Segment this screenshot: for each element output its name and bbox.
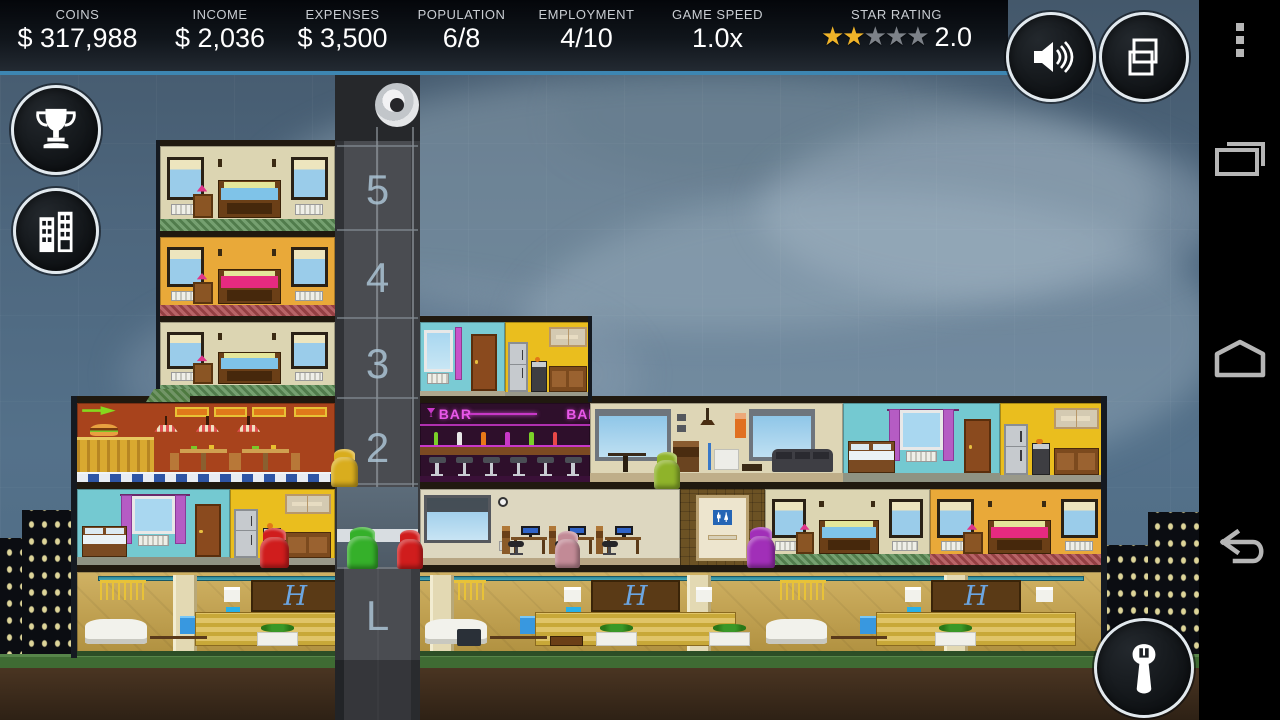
desk-leg [542,540,545,554]
bottle [505,432,510,445]
fridge-handle [522,350,523,360]
bottle [434,432,439,445]
wall-lamp [218,333,222,340]
white-cabinet [714,449,739,470]
lamp-shade [154,425,177,432]
window [132,496,175,535]
window [291,157,328,200]
wall-clock [498,497,508,507]
floor-slab [71,396,340,403]
floor-lamp [708,443,711,470]
coffee-table [742,464,762,471]
hud-label-income: INCOME [193,7,248,22]
cushion [813,452,829,460]
door-handle [475,360,478,363]
hanging-lamp [706,408,709,421]
shaft-base-shade [335,660,420,720]
reception-sign: H [931,580,1020,612]
menu-board [214,407,248,417]
fridge-handle [1020,450,1022,460]
bed [218,269,281,304]
suitcase [550,636,583,646]
lounge-floor2[interactable] [590,403,843,483]
game-screen: BARBARHHH 5432L COINS $ 317,988 INCOME $… [0,0,1280,720]
bar-counter [420,445,590,455]
radiator [906,451,937,462]
radiator [892,541,918,551]
nightstand [193,282,212,304]
figure-male [717,512,721,522]
bottle [481,432,486,445]
bed [82,526,128,557]
frame-panel [828,540,870,550]
counter [549,366,586,393]
pillow [851,444,869,451]
cushion [776,452,792,460]
curtain [455,327,463,380]
floor-slab [414,316,592,322]
floor-slab [71,482,1107,489]
bedroom-floor1-mid[interactable] [765,489,930,566]
lamp-shade [196,425,219,432]
stool-leg [517,463,520,475]
stove [531,361,546,392]
monitor [521,526,539,535]
android-body [260,537,289,568]
radiator [138,535,169,546]
sound-button[interactable] [1006,12,1096,102]
speaker-icon [1027,33,1075,81]
window [424,330,453,372]
tools-button[interactable] [1094,618,1194,718]
android-body [747,536,775,568]
fridge-handle [251,535,253,545]
shelf-tower [502,526,510,554]
bedroom-floor1-right[interactable] [930,489,1105,566]
monitor-stand [529,535,533,537]
pillow [106,528,124,534]
buildings-button[interactable] [13,188,99,274]
table-item [209,445,214,449]
plant [596,632,637,645]
trophy-icon [33,105,79,155]
lamp-shade [237,425,260,432]
android-purple-restroom[interactable] [747,527,775,568]
hud-stat-star-rating: STAR RATING ★★★★★2.0 [785,0,1008,71]
blanket [221,188,278,200]
luggage [457,629,481,646]
shelf-tower [596,526,604,554]
reception-sign: H [591,580,680,612]
window [1061,499,1098,538]
stool-leg [490,463,493,475]
radiator [1065,541,1093,551]
hud-value-game-speed: 1.0x [692,23,743,54]
dirt [0,668,1280,720]
menu-board [175,407,209,417]
plant [935,632,976,645]
plant [257,632,298,645]
counter-door [1057,453,1074,470]
layers-icon [1120,33,1168,81]
lamp-shade-dark [700,420,715,426]
shaft-floor-line [337,229,418,231]
chair-base [510,553,523,555]
table-leg [263,453,268,471]
lobby-floor-line [77,651,1105,656]
android-red-kitchen[interactable] [260,528,289,568]
diner-floor2[interactable] [77,403,335,483]
floor-slab [156,140,338,146]
desk-lamp [564,590,580,602]
achievements-button[interactable] [11,85,101,175]
bed [819,520,878,554]
window [424,495,492,543]
radiator [295,204,323,215]
back-icon[interactable] [1199,528,1280,570]
door [964,419,991,473]
blanket [221,276,278,287]
hud-label-coins: COINS [56,7,100,22]
blanket [849,451,894,460]
hud-stat-income: INCOME $ 2,036 [155,0,285,71]
chair [232,453,241,471]
upper-cabinet [549,327,586,347]
bedroom-floor1-left[interactable] [77,489,230,566]
desk-lamp [224,590,240,602]
hotel-monogram: H [284,581,308,612]
bed [218,180,281,218]
bottle [553,432,558,445]
bedroom-floor4[interactable] [160,237,335,317]
neon-line [466,413,537,415]
shaft-floor-line [337,145,418,147]
door-plate [708,535,738,540]
pot [1036,439,1043,444]
window [900,410,944,450]
floor-label-L: L [335,592,420,640]
star-icon: ★ [842,24,865,50]
desk-lamp [1036,590,1052,602]
pulley-hub [390,98,404,112]
grass [0,654,1280,668]
arrow-sign [82,406,116,415]
hotel-monogram: H [964,581,988,612]
hud-label-expenses: EXPENSES [305,7,379,22]
android-body [555,539,580,568]
door [471,334,497,390]
menu-board [294,407,328,417]
hud-value-income: $ 2,036 [175,23,265,54]
shelf-line [420,424,590,426]
bed [218,352,281,385]
bed [988,520,1051,554]
android-body [397,539,423,569]
chandelier [780,580,826,600]
hud-label-employment: EMPLOYMENT [538,7,634,22]
nightstand [193,194,212,218]
table-leg [201,453,206,471]
cabinet-split [1076,410,1077,427]
radiator [295,372,323,382]
stool-leg [463,463,466,475]
counter [1054,448,1099,475]
fridge [234,509,258,558]
android-green-lounge[interactable] [654,452,680,489]
overflow-menu-icon[interactable] [1199,22,1280,58]
armchair [766,619,828,644]
pulley-wheel [375,83,419,127]
fridge [508,342,528,392]
chair [291,453,300,471]
blanket [991,527,1048,538]
screens-button[interactable] [1099,12,1189,102]
stool-leg [571,463,574,475]
chair [170,453,179,471]
info-stand [860,616,875,634]
android-body [331,457,358,487]
hud-label-population: POPULATION [418,7,506,22]
window [291,247,328,287]
table-item [271,445,276,449]
fridge-split [236,530,256,531]
counter-door [569,371,583,387]
wall-lamp [218,249,222,256]
service-bell [226,607,240,612]
bedroom-floor5[interactable] [160,146,335,232]
chandelier [100,580,146,600]
curtain [175,495,186,544]
bar-floor2[interactable]: BARBAR [420,403,590,483]
star-icon: ★ [906,24,929,50]
menu-board [252,407,286,417]
curtain [943,409,954,460]
table-item [191,446,197,449]
window [889,499,924,538]
info-stand [520,616,535,634]
restroom-sign [713,510,732,524]
blanket [221,358,278,368]
hud-value-employment: 4/10 [560,23,613,54]
hud-label-star-rating: STAR RATING [851,7,942,22]
pillow [873,444,891,451]
counter-door [309,537,327,553]
desk-lamp [696,590,712,602]
stool-leg [544,463,547,475]
restroom-door [696,495,749,561]
pillow [85,528,103,534]
fridge [1004,424,1028,475]
recent-apps-icon[interactable] [1199,138,1280,182]
fridge-split [510,364,526,365]
nightstand [796,532,814,554]
hud-stat-population: POPULATION 6/8 [400,0,523,71]
frame-panel [997,540,1042,550]
building-edge [588,316,592,402]
info-stand [180,616,195,634]
counter-door [1078,453,1095,470]
side-table [831,636,888,639]
building-icon [34,208,78,254]
service-bell [566,607,580,612]
android-red-elevator[interactable] [397,530,423,569]
hallway-floor3[interactable] [420,322,505,400]
android-green-elevator[interactable] [347,527,378,569]
wall-lamp [871,501,875,508]
wall-lamp [218,159,222,167]
kitchen-floor2[interactable] [1000,403,1103,483]
side-table [490,636,547,639]
stove-top [532,362,545,367]
floor-slab [156,316,338,322]
skyline-building [22,510,78,660]
floor-label-4: 4 [335,254,420,302]
hud-stat-coins: COINS $ 317,988 [0,0,155,71]
android-pink-office[interactable] [555,531,580,568]
home-icon[interactable] [1199,338,1280,378]
dining-leg [623,456,628,472]
android-body [654,460,680,489]
cabinet-split [568,329,569,345]
hud-value-expenses: $ 3,500 [297,23,387,54]
hud-stat-game-speed: GAME SPEED 1.0x [650,0,785,71]
upper-cabinet [285,494,331,514]
hud-bar: COINS $ 317,988 INCOME $ 2,036 EXPENSES … [0,0,1008,75]
shaft-floor-line [337,317,418,319]
fridge-handle [1020,431,1022,441]
stove [1032,443,1051,475]
table-item [252,446,258,449]
bedroom-floor3[interactable] [160,322,335,396]
bar-sign-text: BAR [566,406,590,422]
bar-sign-text: BAR [439,406,472,422]
frame-panel [227,290,272,301]
android-nav-bar [1199,0,1280,720]
armchair [85,619,147,644]
fridge-handle [251,516,253,526]
radiator [427,373,449,383]
desk-lamp [905,590,921,602]
stove-top [1033,444,1050,449]
wall-lamp [272,159,276,167]
hud-stat-expenses: EXPENSES $ 3,500 [285,0,400,71]
counter [285,532,331,558]
picture-frames [677,411,686,432]
wall-lamp [272,333,276,340]
hotel-lobby[interactable]: HHH [77,572,1105,656]
counter-door [288,537,306,553]
door-handle [969,445,972,449]
blanket [83,535,127,544]
android-body [347,536,378,569]
plant-greens [600,624,633,632]
monitor [615,526,633,535]
hud-label-game-speed: GAME SPEED [672,7,763,22]
reception-sign: H [251,580,340,612]
wall-lamp [988,501,992,508]
floor-slab [71,565,1107,572]
floor-label-3: 3 [335,340,420,388]
bottle [529,432,534,445]
wrench-icon [1119,641,1169,695]
radiator [295,291,323,301]
hud-value-population: 6/8 [443,23,481,54]
wall-lamp [819,501,823,508]
kitchen-floor3[interactable] [505,322,590,400]
shaft-floor-line [337,397,418,399]
counter [77,437,154,473]
plant [709,632,750,645]
floor-slab [414,396,592,403]
door-handle [199,530,202,533]
monitor-stand [622,535,626,537]
plant-greens [713,624,746,632]
service-bell [907,607,921,612]
fridge-split [1006,446,1026,447]
cushion [795,452,811,460]
frame-panel [227,203,272,214]
hotel-monogram: H [624,581,648,612]
nightstand [963,532,982,554]
plant-greens [261,624,294,632]
martini-icon [427,408,436,418]
burger [90,424,118,436]
bottle [457,432,462,445]
counter-door [552,371,566,387]
star-icon: ★ [864,24,887,50]
floor-slab [584,396,1107,403]
wall-lamp [272,249,276,256]
upper-cabinet [1054,408,1099,429]
hud-value-star-rating: 2.0 [935,22,973,53]
stool-leg [435,463,438,475]
hud-stat-employment: EMPLOYMENT 4/10 [523,0,650,71]
nightstand [193,363,212,384]
star-icon: ★ [885,24,908,50]
star-icon: ★ [821,24,844,50]
door [195,504,221,556]
pot [535,357,540,362]
android-yellow-waiting[interactable] [331,449,358,487]
bedroom-floor2[interactable] [843,403,1000,483]
building-edge [156,140,160,402]
wall-art-orange [735,413,745,439]
building-edge [1101,396,1107,658]
cabinet-split [307,496,308,512]
desk-leg [589,540,592,554]
sofa [772,449,833,471]
fridge-handle [522,368,523,378]
floor-label-5: 5 [335,166,420,214]
office-floor1[interactable] [420,489,680,566]
blanket [822,527,876,538]
wall-lamp [1042,501,1046,508]
hud-value-coins: $ 317,988 [17,23,137,54]
desk-leg [636,540,639,554]
building-edge [71,396,77,658]
window [291,332,328,369]
figure-female [724,512,728,522]
frame-panel [227,371,272,381]
floor-slab [156,231,338,237]
bed [848,441,895,473]
chair-base [603,553,616,555]
side-table [150,636,207,639]
